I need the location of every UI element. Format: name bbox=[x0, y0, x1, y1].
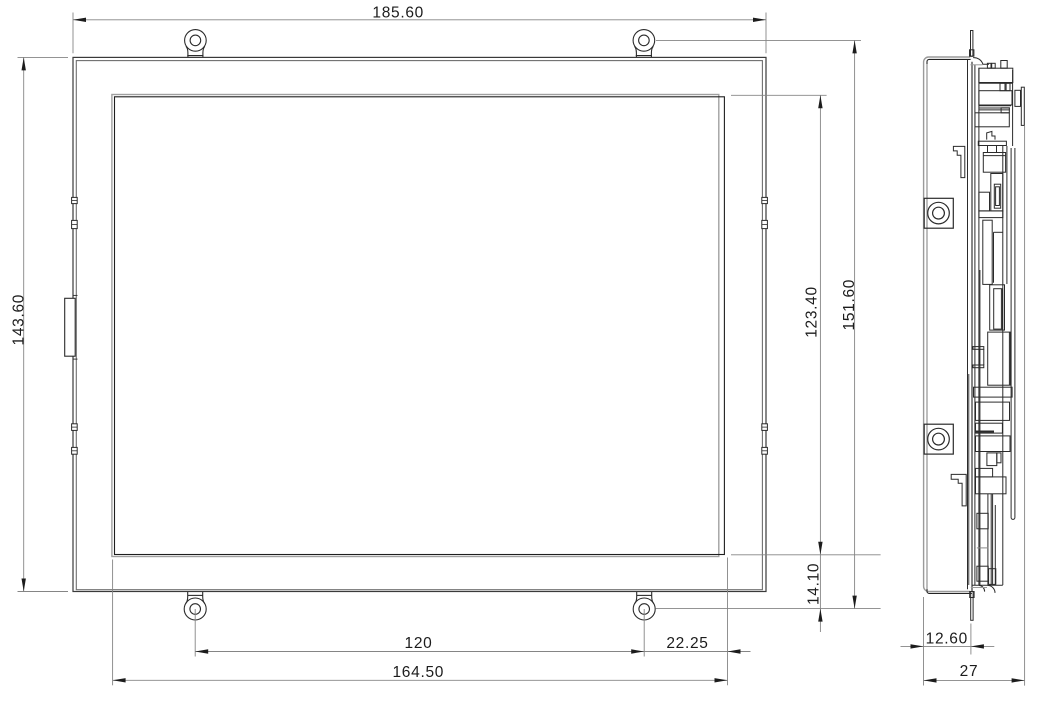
svg-text:27: 27 bbox=[960, 663, 979, 680]
svg-text:143.60: 143.60 bbox=[10, 294, 27, 346]
svg-text:164.50: 164.50 bbox=[392, 664, 444, 681]
svg-text:185.60: 185.60 bbox=[372, 5, 424, 22]
svg-text:12.60: 12.60 bbox=[926, 631, 968, 648]
svg-text:151.60: 151.60 bbox=[841, 279, 858, 331]
svg-text:120: 120 bbox=[405, 635, 433, 652]
svg-text:22.25: 22.25 bbox=[666, 635, 708, 652]
svg-text:14.10: 14.10 bbox=[806, 563, 823, 605]
svg-text:123.40: 123.40 bbox=[803, 286, 820, 338]
